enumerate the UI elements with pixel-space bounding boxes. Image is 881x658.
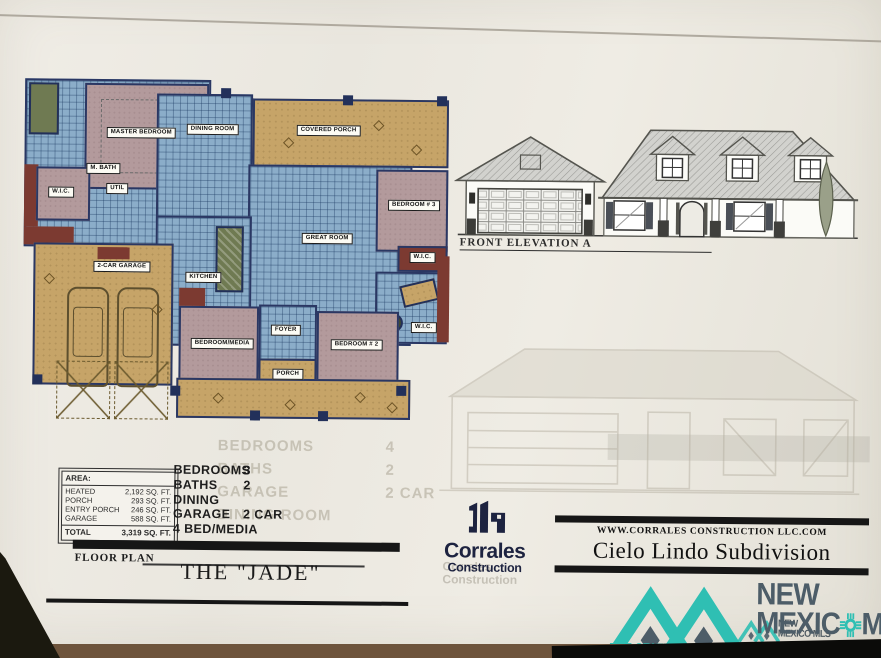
pier — [467, 218, 476, 234]
ghost-builder-line: Construction — [442, 573, 517, 587]
room-label-wic-master: W.I.C. — [48, 186, 74, 197]
ghost-spec-row: BEDROOMS 4 — [218, 434, 436, 459]
room-label-dining: DINING ROOM — [187, 124, 239, 135]
ghost-spec-value: 2 CAR — [385, 482, 435, 505]
area-total-label: TOTAL — [65, 528, 91, 538]
wall-pier — [396, 386, 406, 396]
garage-door-swing — [56, 361, 111, 420]
plan-mark — [355, 392, 366, 403]
subdivision-block: WWW.CORRALES CONSTRUCTION LLC.COM Cielo … — [555, 515, 870, 575]
area-row-label: HEATED — [65, 487, 95, 496]
area-row: GARAGE 588 SQ. FT. — [65, 514, 171, 524]
spec-label: BATHS — [173, 477, 243, 492]
spec-value: 3 — [243, 463, 251, 478]
area-row-value: 293 SQ. FT. — [131, 496, 171, 505]
wall-pier — [318, 411, 328, 421]
room-label-master-bedroom: MASTER BEDROOM — [107, 127, 176, 139]
mls-word-mexico: MEXIC — [756, 605, 840, 641]
elevation-label-text: FRONT ELEVATION A — [460, 236, 592, 249]
plan-name-text: THE "JADE" — [180, 559, 320, 585]
mls-word-mls: MLS — [861, 606, 881, 642]
subdivision-name: Cielo Lindo Subdivision — [555, 537, 869, 566]
ghost-spec-label: BEDROOMS — [218, 434, 386, 459]
ghost-spec-value: 2 — [385, 459, 395, 482]
room-label-master-bath: M. BATH — [86, 163, 120, 174]
spec-value: 2 — [243, 478, 251, 493]
column-base — [710, 221, 721, 237]
room-label-bedroom2: BEDROOM # 2 — [331, 339, 383, 350]
front-elevation-drawing — [454, 100, 867, 254]
plan-mark — [213, 392, 224, 403]
area-row-value: 588 SQ. FT. — [131, 514, 171, 523]
lamp — [585, 194, 591, 205]
photographed-floor-plan-sheet: BEDROOMS 4 BATHS 2 GARAGE 2 CAR DINING R… — [0, 0, 881, 658]
column-base — [658, 220, 669, 236]
area-row-value: 2,192 SQ. FT. — [125, 487, 171, 496]
sheet-content: BEDROOMS 4 BATHS 2 GARAGE 2 CAR DINING R… — [0, 0, 881, 658]
spec-label: GARAGE — [173, 507, 243, 522]
wall-pier — [343, 95, 353, 105]
area-table: AREA: HEATED 2,192 SQ. FT. PORCH 293 SQ.… — [61, 471, 176, 542]
wall-pier — [170, 386, 180, 396]
plan-name: THE "JADE" — [180, 560, 320, 585]
room-label-foyer: FOYER — [271, 325, 301, 336]
spec-row: DINING — [173, 492, 283, 508]
area-row-value: 246 SQ. FT. — [131, 505, 171, 514]
spec-value: 2 CAR — [243, 508, 283, 523]
mls-logo: NEW MEXICMLS THE STATEWIDE NETWORK OF NE… — [603, 576, 881, 579]
plan-mark — [411, 144, 422, 155]
title-bar-top — [73, 540, 400, 552]
column-base — [774, 221, 785, 237]
room-label-wic-bedroom3: W.I.C. — [409, 252, 435, 263]
front-door — [680, 202, 704, 237]
spec-row: BEDROOMS 3 — [173, 463, 283, 479]
fixture-shower — [29, 82, 59, 134]
builder-name-top: Corrales — [433, 540, 537, 562]
subdivision-bar-bottom — [555, 565, 869, 575]
room-dining — [156, 94, 253, 223]
room-label-utility: UTIL — [106, 183, 128, 194]
builder-name-bottom: Construction — [433, 561, 537, 575]
garage-door-swing — [114, 361, 169, 420]
plan-mark — [373, 120, 384, 131]
fixture-closet-strip — [179, 288, 205, 306]
wall-pier — [221, 88, 231, 98]
room-label-great-room: GREAT ROOM — [302, 233, 353, 244]
area-row-label: PORCH — [65, 496, 92, 505]
room-label-bedroom-media: BEDROOM/MEDIA — [191, 338, 254, 350]
area-table-header: AREA: — [62, 472, 174, 487]
spec-row: GARAGE 2 CAR — [173, 507, 283, 523]
room-label-kitchen: KITCHEN — [185, 272, 221, 283]
room-label-covered-porch: COVERED PORCH — [297, 125, 361, 137]
wall-pier — [32, 374, 42, 384]
wall-pier — [250, 410, 260, 420]
fixture-tub — [399, 278, 439, 308]
area-total-value: 3,319 SQ. FT. — [121, 528, 170, 538]
elevation-label: FRONT ELEVATION A — [460, 236, 712, 252]
spec-row: 4 BED/MEDIA — [173, 522, 283, 538]
door-sidelite — [676, 202, 680, 234]
floor-plan: MASTER BEDROOM M. BATH W.I.C. UTIL DININ… — [18, 74, 457, 426]
lamp — [469, 193, 475, 204]
area-total-row: TOTAL 3,319 SQ. FT. — [62, 525, 174, 541]
builder-logo: Corrales Construction — [433, 500, 538, 575]
room-label-bedroom3: BEDROOM # 3 — [388, 200, 440, 211]
ghost-elevation — [431, 334, 869, 520]
gable-vent — [520, 155, 540, 169]
spec-row: BATHS 2 — [173, 477, 283, 493]
spec-label: DINING — [173, 492, 243, 507]
door-sidelite — [704, 203, 708, 235]
spec-label: BEDROOMS — [173, 463, 243, 478]
fixture-closet-strip — [437, 256, 450, 342]
wall-pier — [437, 96, 447, 106]
fixture-storage — [98, 247, 130, 259]
plan-mark — [284, 399, 295, 410]
room-label-garage: 2-CAR GARAGE — [93, 261, 150, 273]
plan-mark — [44, 273, 55, 284]
area-table-rows: HEATED 2,192 SQ. FT. PORCH 293 SQ. FT. E… — [62, 486, 174, 526]
room-entry-porch — [176, 378, 410, 420]
corrales-building-icon — [461, 500, 509, 538]
area-row-label: GARAGE — [65, 514, 97, 523]
room-label-porch: PORCH — [272, 369, 303, 380]
zia-symbol-icon — [840, 613, 862, 637]
title-bar-bottom — [46, 598, 408, 605]
ghost-spec-value: 4 — [386, 436, 396, 459]
plan-mark — [283, 137, 294, 148]
spec-label: 4 BED/MEDIA — [173, 522, 258, 538]
spec-list: BEDROOMS 3 BATHS 2 DINING GARAGE 2 CAR 4… — [173, 463, 283, 538]
plan-mark — [386, 402, 397, 413]
pier — [584, 220, 593, 236]
room-label-wic-bedroom2: W.I.C. — [411, 322, 437, 333]
mls-wordmark: NEW MEXICMLS — [756, 579, 881, 639]
garage-door — [478, 189, 582, 234]
